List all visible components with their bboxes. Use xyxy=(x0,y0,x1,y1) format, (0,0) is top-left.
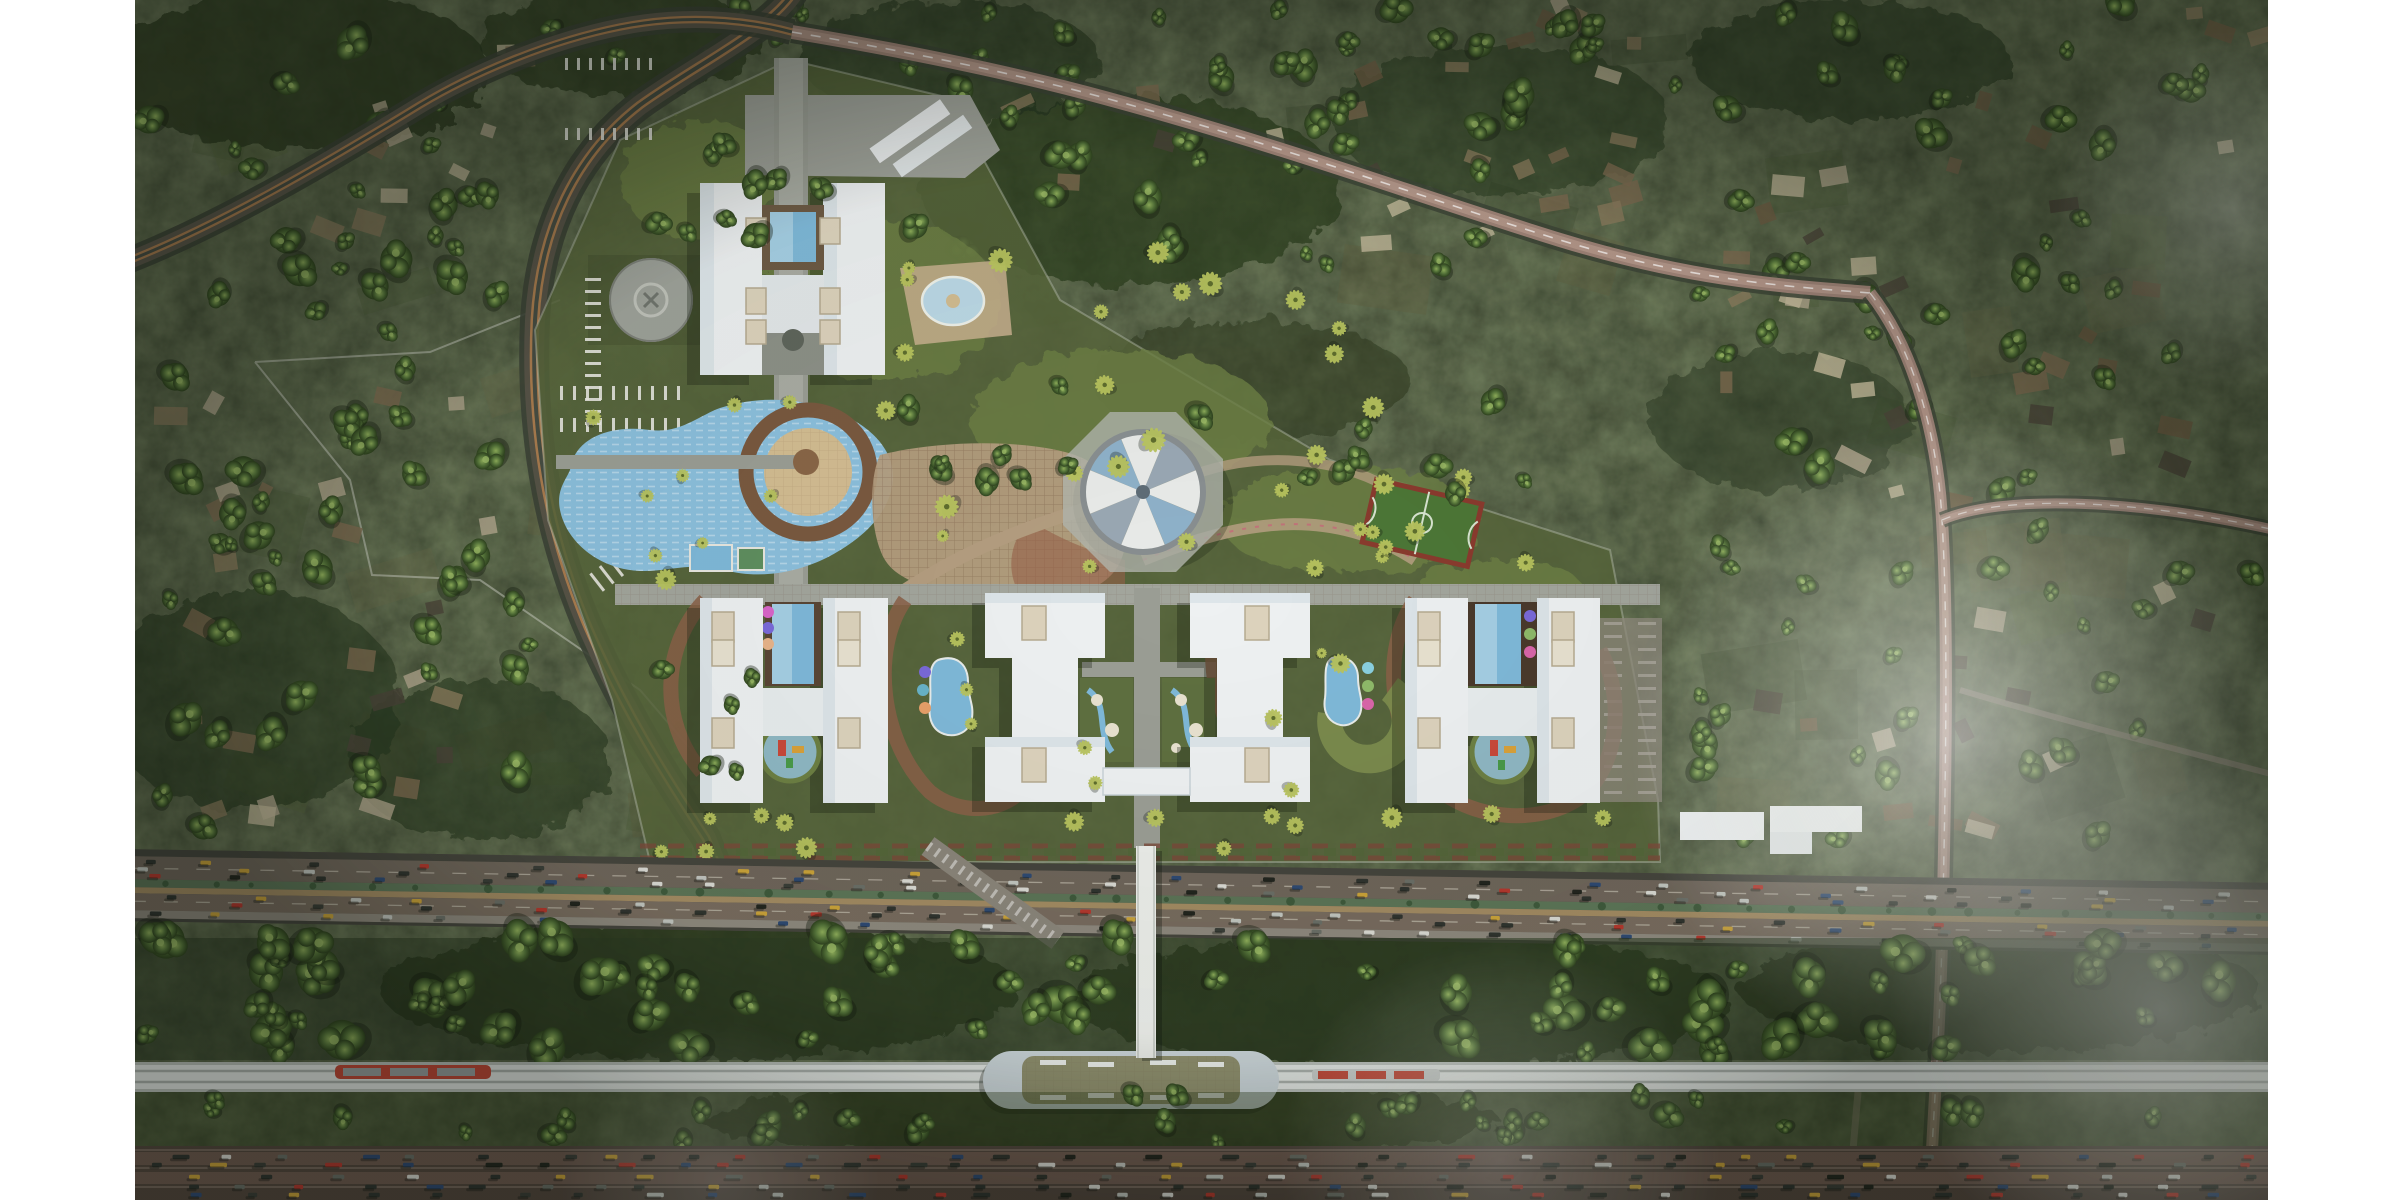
vignette xyxy=(135,0,2268,1200)
aerial-masterplan-svg xyxy=(0,0,2400,1200)
right-margin xyxy=(2268,0,2400,1200)
left-margin xyxy=(0,0,135,1200)
masterplan-render xyxy=(0,0,2400,1200)
